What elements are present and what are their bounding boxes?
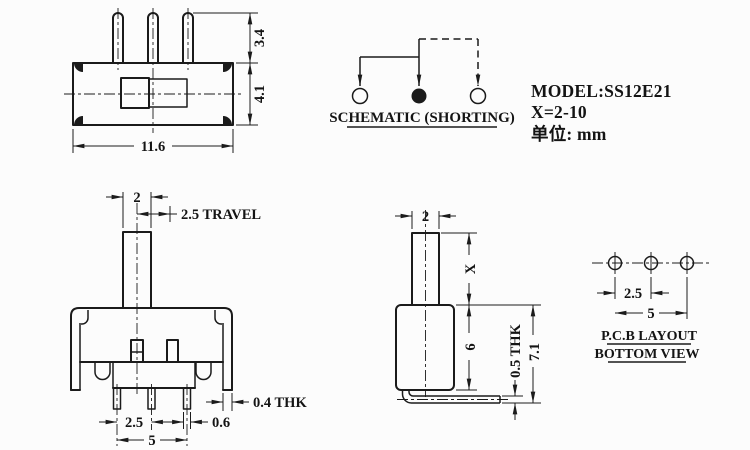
side-view: 2 X 6 7.1 0.5 THK [395, 209, 543, 420]
dim-hole-span-label: 5 [647, 306, 654, 322]
front-stop-bump [167, 340, 178, 362]
front-left-notch [95, 362, 110, 380]
corner-mark-bl [74, 116, 83, 125]
info-block: MODEL:SS12E21 X=2-10 单位: mm [531, 81, 672, 144]
dimension-pin-height: 3.4 [193, 13, 268, 63]
technical-drawing-sheet: 3.4 4.1 11.6 SCHEMATIC (SHORTING) MODEL:… [0, 0, 750, 450]
front-left-hook [79, 310, 88, 324]
slider-travel-opening [149, 79, 187, 107]
terminal-1-circle [353, 89, 368, 104]
top-view: 3.4 4.1 11.6 [64, 8, 268, 155]
front-right-notch [196, 362, 211, 380]
unit-note: 单位: mm [531, 124, 607, 144]
dimension-pin-width: 0.6 [184, 412, 231, 431]
model-number: MODEL:SS12E21 [531, 81, 672, 101]
dim-total-height-label: 7.1 [527, 343, 543, 361]
dimension-total-height: 7.1 [525, 305, 543, 403]
dim-pin-pitch-label: 2.5 [125, 415, 143, 431]
pcb-layout: 2.5 5 P.C.B LAYOUT BOTTOM VIEW [592, 252, 710, 362]
dim-travel-label: 2.5 TRAVEL [181, 207, 261, 223]
dim-cover-thickness-label: 0.4 THK [253, 395, 307, 411]
corner-mark-tl [74, 63, 83, 72]
slider-knob-opening [121, 78, 149, 108]
dimension-side-body-height: 6 [461, 305, 479, 390]
dimension-pin-thickness: 0.5 THK [508, 323, 524, 420]
dimension-pin-pitch: 2.5 [99, 415, 184, 431]
dim-pin-width-label: 0.6 [212, 415, 230, 431]
dim-pin-thickness-label: 0.5 THK [508, 323, 524, 377]
dim-knob-width-label: 2 [133, 190, 140, 206]
dim-body-width-label: 11.6 [141, 139, 166, 155]
schematic-title: SCHEMATIC (SHORTING) [329, 110, 514, 126]
corner-mark-br [223, 116, 232, 125]
dim-pin-span-label: 5 [148, 433, 155, 449]
dim-side-knob-width-label: 2 [422, 209, 429, 225]
dimension-cover-thickness: 0.4 THK [206, 393, 307, 411]
dimension-knob-height-x: X [461, 233, 479, 305]
front-right-hook [215, 310, 224, 324]
terminal-3-circle [471, 89, 486, 104]
dim-pin-height-label: 3.4 [252, 29, 268, 47]
dim-side-body-height-label: 6 [463, 343, 479, 350]
terminal-2-circle-filled [412, 89, 427, 104]
dimension-travel: 2.5 TRAVEL [137, 206, 261, 223]
pcb-layout-subtitle: BOTTOM VIEW [595, 347, 700, 362]
dimension-hole-span: 5 [615, 305, 687, 322]
dimension-pin-span: 5 [117, 432, 187, 449]
corner-mark-tr [223, 63, 232, 72]
pcb-layout-title: P.C.B LAYOUT [601, 329, 697, 344]
drawing-canvas: 3.4 4.1 11.6 SCHEMATIC (SHORTING) MODEL:… [0, 0, 750, 450]
dim-hole-pitch-label: 2.5 [624, 286, 642, 302]
x-range: X=2-10 [531, 102, 587, 122]
schematic: SCHEMATIC (SHORTING) [329, 39, 514, 127]
side-body [396, 305, 454, 390]
dim-body-height-label: 4.1 [252, 85, 268, 103]
dimension-hole-pitch: 2.5 [597, 286, 669, 302]
front-view: 2 2.5 TRAVEL 2.5 0.6 5 [71, 190, 307, 449]
dim-knob-height-label: X [463, 263, 479, 274]
